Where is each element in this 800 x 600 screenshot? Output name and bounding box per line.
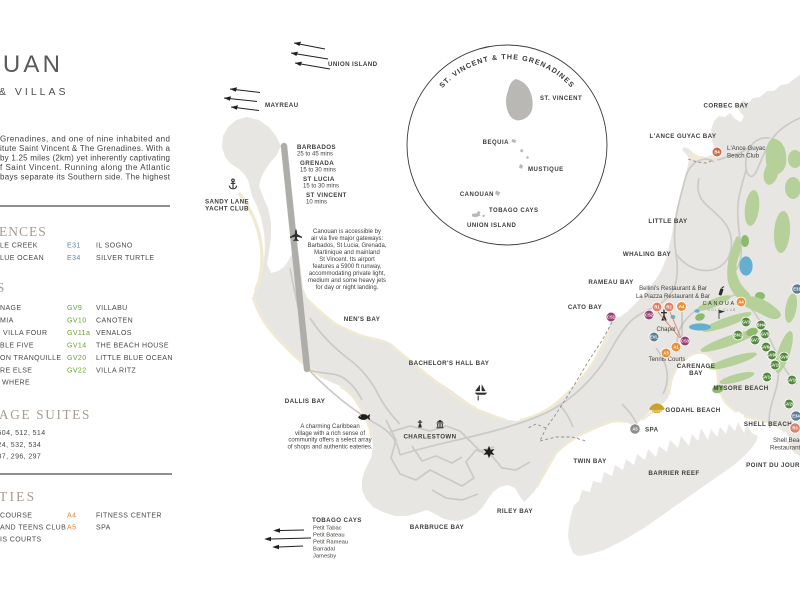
svg-text:GV22: GV22 bbox=[67, 368, 87, 375]
svg-text:RILEY BAY: RILEY BAY bbox=[497, 508, 533, 515]
svg-text:CATO BAY: CATO BAY bbox=[568, 304, 603, 311]
svg-text:287, 296, 297: 287, 296, 297 bbox=[0, 453, 41, 460]
svg-text:BARRIER REEF: BARRIER REEF bbox=[648, 470, 699, 477]
svg-text:15 to 30 mins: 15 to 30 mins bbox=[303, 184, 339, 190]
svg-text:FITNESS CENTER: FITNESS CENTER bbox=[96, 513, 162, 520]
svg-text:GV16: GV16 bbox=[787, 378, 798, 383]
svg-text:MUSTIQUE: MUSTIQUE bbox=[528, 167, 564, 173]
svg-text:ON TRANQUILLE: ON TRANQUILLE bbox=[0, 355, 61, 362]
svg-text:POINT DU JOUR: POINT DU JOUR bbox=[746, 462, 800, 469]
svg-text:air via five major gateways:: air via five major gateways: bbox=[311, 236, 384, 242]
svg-text:B4: B4 bbox=[714, 150, 720, 155]
svg-text:WHALING BAY: WHALING BAY bbox=[623, 251, 672, 258]
svg-text:BARBADOS: BARBADOS bbox=[297, 144, 336, 151]
svg-text:CANOTEN: CANOTEN bbox=[96, 318, 133, 325]
svg-text:f Saint Vincent. Running along: f Saint Vincent. Running along the Atlan… bbox=[0, 163, 170, 172]
svg-text:TIES: TIES bbox=[0, 489, 36, 504]
svg-text:GODAHL BEACH: GODAHL BEACH bbox=[665, 407, 720, 414]
svg-text:BLE FIVE: BLE FIVE bbox=[0, 343, 34, 350]
svg-text:MIA: MIA bbox=[0, 318, 14, 325]
svg-text:LITTLE BAY: LITTLE BAY bbox=[648, 218, 688, 225]
svg-text:AGE SUITES: AGE SUITES bbox=[0, 407, 91, 422]
svg-text:GV9: GV9 bbox=[780, 355, 789, 360]
svg-text:GV6a: GV6a bbox=[761, 345, 772, 350]
svg-text:TOBAGO CAYS: TOBAGO CAYS bbox=[489, 208, 539, 214]
svg-text:village with a rich sense of: village with a rich sense of bbox=[295, 431, 365, 437]
svg-text:ST VINCENT: ST VINCENT bbox=[306, 192, 347, 199]
svg-text:A3: A3 bbox=[663, 351, 669, 356]
svg-text:Martinique and mainland: Martinique and mainland bbox=[314, 250, 380, 256]
svg-text:A4: A4 bbox=[679, 304, 685, 309]
svg-text:Petit Bateau: Petit Bateau bbox=[313, 533, 345, 539]
svg-text:504, 512, 514: 504, 512, 514 bbox=[0, 430, 46, 437]
svg-text:Bellini's Restaurant & Bar: Bellini's Restaurant & Bar bbox=[639, 286, 707, 292]
svg-text:GV20: GV20 bbox=[784, 402, 795, 407]
svg-text:GV11a: GV11a bbox=[67, 330, 90, 337]
svg-text:community offers a select arra: community offers a select array bbox=[288, 438, 371, 444]
svg-text:TOBAGO CAYS: TOBAGO CAYS bbox=[312, 517, 362, 524]
svg-text:NEN'S BAY: NEN'S BAY bbox=[344, 316, 381, 323]
svg-text:GV10: GV10 bbox=[770, 363, 781, 368]
svg-text:UNION ISLAND: UNION ISLAND bbox=[328, 61, 378, 68]
svg-text:by 1.25 miles (2km) yet inhere: by 1.25 miles (2km) yet inherently capti… bbox=[0, 153, 170, 162]
svg-text:SPA: SPA bbox=[96, 525, 111, 532]
svg-text:TWIN BAY: TWIN BAY bbox=[573, 458, 607, 465]
svg-text:LE CREEK: LE CREEK bbox=[0, 243, 38, 250]
svg-text:25 to 45 mins: 25 to 45 mins bbox=[297, 152, 333, 158]
svg-text:& VILLAS: & VILLAS bbox=[0, 86, 69, 98]
svg-text:GRENADA: GRENADA bbox=[300, 160, 334, 167]
svg-text:LUE OCEAN: LUE OCEAN bbox=[0, 255, 44, 262]
svg-text:SPA: SPA bbox=[645, 427, 659, 434]
svg-text:itute Saint Vincent & The Gren: itute Saint Vincent & The Grenadines. Wi… bbox=[0, 144, 171, 153]
svg-text:R1: R1 bbox=[654, 305, 660, 310]
svg-text:GV14: GV14 bbox=[762, 375, 773, 380]
svg-text:A5: A5 bbox=[632, 427, 638, 432]
svg-text:VILLA RITZ: VILLA RITZ bbox=[96, 368, 137, 375]
svg-text:524, 532, 534: 524, 532, 534 bbox=[0, 442, 41, 449]
svg-text:E34: E34 bbox=[792, 414, 800, 419]
svg-text:SILVER TURTLE: SILVER TURTLE bbox=[96, 255, 155, 262]
svg-text:ENCES: ENCES bbox=[0, 224, 47, 239]
svg-text:GV3: GV3 bbox=[742, 320, 751, 325]
svg-text:GV14: GV14 bbox=[67, 343, 87, 350]
svg-text:WHERE: WHERE bbox=[2, 380, 30, 387]
svg-text:L'Ance Guyac: L'Ance Guyac bbox=[727, 145, 765, 152]
svg-text:CS1: CS1 bbox=[607, 315, 616, 320]
svg-text:GV20: GV20 bbox=[67, 355, 87, 362]
svg-text:A charming Caribbean: A charming Caribbean bbox=[300, 424, 359, 430]
svg-text:Jamesby: Jamesby bbox=[313, 554, 336, 560]
svg-text:SANDY LANE: SANDY LANE bbox=[205, 199, 249, 206]
svg-text:Grenadines, and one of nine in: Grenadines, and one of nine inhabited an… bbox=[0, 135, 170, 144]
svg-text:YACHT CLUB: YACHT CLUB bbox=[205, 206, 249, 213]
svg-text:RAMEAU BAY: RAMEAU BAY bbox=[588, 279, 634, 286]
svg-text:A4: A4 bbox=[738, 300, 744, 305]
svg-text:MAYREAU: MAYREAU bbox=[265, 102, 299, 109]
svg-text:E31: E31 bbox=[793, 287, 800, 292]
svg-text:ST. VINCENT: ST. VINCENT bbox=[540, 96, 582, 102]
svg-text:ST LUCIA: ST LUCIA bbox=[303, 176, 335, 183]
svg-text:BACHELOR'S HALL BAY: BACHELOR'S HALL BAY bbox=[409, 360, 490, 367]
svg-text:Restaurant & Bar: Restaurant & Bar bbox=[770, 445, 800, 452]
svg-text:COURSE: COURSE bbox=[0, 513, 32, 520]
svg-text:VENALOS: VENALOS bbox=[96, 330, 132, 337]
svg-text:E34: E34 bbox=[67, 255, 81, 262]
svg-text:R2: R2 bbox=[666, 305, 672, 310]
svg-text:Barbados, St Lucia, Grenada,: Barbados, St Lucia, Grenada, bbox=[307, 243, 386, 249]
svg-text:IS COURTS: IS COURTS bbox=[0, 537, 42, 544]
svg-text:THE BEACH HOUSE: THE BEACH HOUSE bbox=[96, 343, 169, 350]
svg-text:NAGE: NAGE bbox=[0, 305, 21, 312]
svg-text:A1: A1 bbox=[673, 345, 679, 350]
svg-text:medium and some heavy jets: medium and some heavy jets bbox=[308, 278, 386, 284]
svg-text:VILLABU: VILLABU bbox=[96, 305, 128, 312]
svg-text:GV10: GV10 bbox=[67, 318, 87, 325]
svg-text:GV5: GV5 bbox=[761, 332, 770, 337]
svg-text:Petit Tabac: Petit Tabac bbox=[313, 526, 342, 532]
svg-text:S: S bbox=[0, 281, 5, 296]
svg-text:bays separate its Southern sid: bays separate its Southern side. The hig… bbox=[0, 172, 171, 181]
svg-text:CHARLESTOWN: CHARLESTOWN bbox=[403, 434, 456, 441]
svg-text:OUAN: OUAN bbox=[0, 51, 63, 78]
svg-text:Canouan is accessible by: Canouan is accessible by bbox=[313, 229, 381, 235]
svg-text:10 mins: 10 mins bbox=[306, 200, 327, 206]
svg-text:A4: A4 bbox=[67, 513, 76, 520]
svg-text:La Piazza Restaurant & Bar: La Piazza Restaurant & Bar bbox=[636, 294, 710, 300]
svg-text:RE ELSE: RE ELSE bbox=[0, 368, 32, 375]
svg-text:SHELL BEACH: SHELL BEACH bbox=[744, 421, 792, 428]
svg-text:15 to 30 mins: 15 to 30 mins bbox=[300, 168, 336, 174]
svg-text:GV9: GV9 bbox=[67, 305, 82, 312]
svg-text:of shops and authentic eaterie: of shops and authentic eateries. bbox=[287, 444, 372, 450]
svg-text:BH4: BH4 bbox=[757, 323, 766, 328]
svg-text:MYSORE BEACH: MYSORE BEACH bbox=[713, 385, 768, 392]
svg-text:BARBRUCE BAY: BARBRUCE BAY bbox=[410, 524, 465, 531]
svg-text:IL SOGNO: IL SOGNO bbox=[96, 243, 133, 250]
svg-text:St Vincent. Its airport: St Vincent. Its airport bbox=[319, 257, 375, 263]
svg-text:Petit Rameau: Petit Rameau bbox=[313, 540, 348, 546]
svg-text:GV9b: GV9b bbox=[767, 353, 778, 358]
svg-text:BEQUIA: BEQUIA bbox=[483, 140, 510, 146]
svg-text:UNION ISLAND: UNION ISLAND bbox=[467, 223, 517, 229]
svg-text:Barradal: Barradal bbox=[313, 547, 335, 553]
svg-text:CANOUAN: CANOUAN bbox=[703, 301, 742, 307]
svg-text:AND TEENS CLUB: AND TEENS CLUB bbox=[0, 525, 66, 532]
svg-text:CORBEC BAY: CORBEC BAY bbox=[703, 103, 749, 110]
svg-text:E31: E31 bbox=[67, 243, 81, 250]
svg-text:EVL: EVL bbox=[650, 335, 659, 340]
svg-text:BN1: BN1 bbox=[734, 333, 743, 338]
svg-text:CARENAGE: CARENAGE bbox=[677, 363, 716, 370]
svg-text:features a 5900 ft runway,: features a 5900 ft runway, bbox=[313, 264, 382, 270]
svg-text:accommodating private light,: accommodating private light, bbox=[309, 271, 386, 277]
svg-text:LITTLE BLUE OCEAN: LITTLE BLUE OCEAN bbox=[96, 355, 173, 362]
svg-text:L'ANCE GUYAC BAY: L'ANCE GUYAC BAY bbox=[650, 133, 717, 140]
svg-text:CANOUAN: CANOUAN bbox=[460, 192, 494, 198]
svg-text:R3: R3 bbox=[792, 426, 798, 431]
svg-text:Beach Club: Beach Club bbox=[727, 153, 760, 160]
svg-text:BAY: BAY bbox=[689, 370, 703, 377]
svg-text:VILLA FOUR: VILLA FOUR bbox=[3, 330, 47, 337]
svg-text:A5: A5 bbox=[67, 525, 76, 532]
svg-text:DALLIS BAY: DALLIS BAY bbox=[285, 398, 326, 405]
svg-text:CS2: CS2 bbox=[645, 313, 654, 318]
svg-text:GV7: GV7 bbox=[751, 338, 760, 343]
svg-text:CS3: CS3 bbox=[681, 339, 690, 344]
svg-text:Shell Beach: Shell Beach bbox=[773, 437, 800, 444]
svg-text:for day or night landing.: for day or night landing. bbox=[316, 285, 379, 291]
